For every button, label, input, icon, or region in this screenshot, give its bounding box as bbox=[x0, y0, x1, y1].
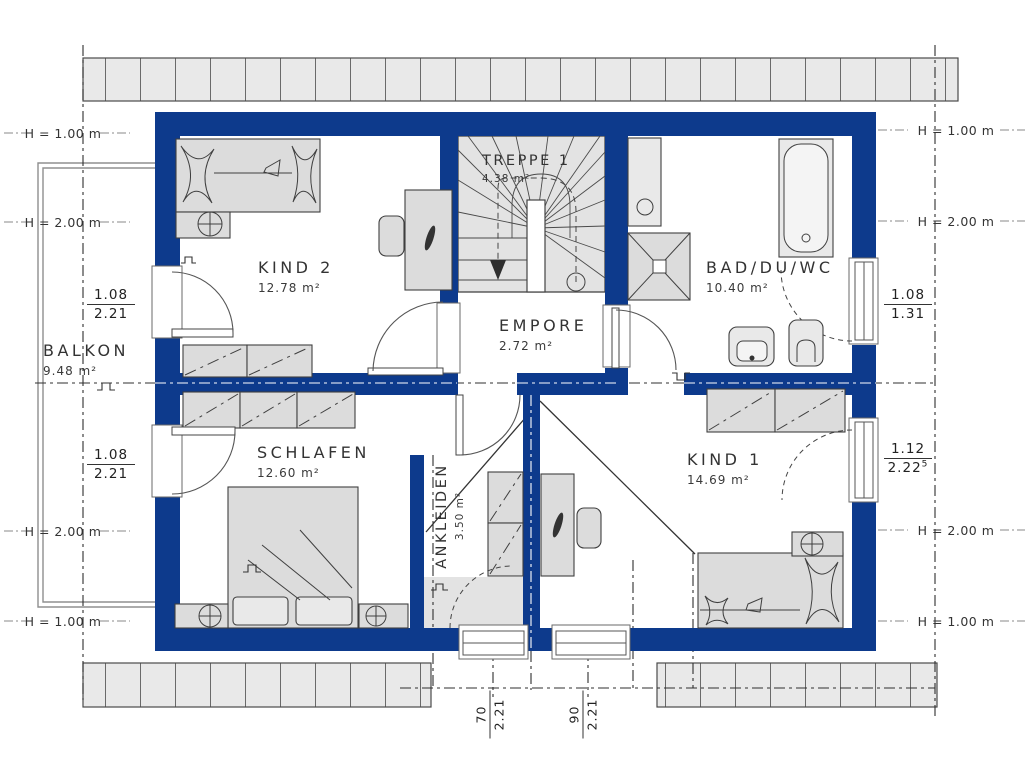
height-marker-left-2: H = 2.00 m bbox=[15, 215, 111, 230]
dim-den: 2.21 bbox=[491, 691, 507, 739]
room-label-empore: EMPORE 2.72 m² bbox=[499, 316, 587, 353]
wall-top bbox=[155, 112, 876, 136]
stair-newel-wall bbox=[527, 200, 545, 292]
dim-den: 2.21 bbox=[87, 305, 135, 322]
room-name-ankleiden: ANKLEIDEN bbox=[434, 436, 450, 596]
room-label-treppe: TREPPE 1 4.38 m² bbox=[482, 153, 571, 185]
dim-num: 1.08 bbox=[884, 287, 932, 305]
room-area-treppe: 4.38 m² bbox=[482, 173, 571, 185]
height-marker-right-1: H = 1.00 m bbox=[908, 123, 1004, 138]
floor-plan-drawing bbox=[0, 0, 1029, 775]
dim-den: 2.21 bbox=[584, 691, 600, 739]
dim-num: 1.08 bbox=[87, 287, 135, 305]
dim-den: 1.31 bbox=[884, 305, 932, 322]
dim-right-lower: 1.12 2.225 bbox=[884, 441, 932, 476]
room-area-kind2: 12.78 m² bbox=[258, 281, 334, 295]
chair-nook bbox=[577, 508, 601, 548]
wall-ankleiden-left bbox=[410, 455, 424, 628]
room-area-schlafen: 12.60 m² bbox=[257, 466, 370, 480]
chair-kind2 bbox=[379, 216, 404, 256]
height-marker-right-3: H = 2.00 m bbox=[908, 523, 1004, 538]
dim-bottom-left: 70 2.21 bbox=[474, 691, 507, 739]
dim-den: 2.21 bbox=[87, 465, 135, 482]
height-marker-right-2: H = 2.00 m bbox=[908, 214, 1004, 229]
door-kind1 bbox=[612, 308, 619, 368]
height-marker-left-1: H = 1.00 m bbox=[15, 126, 111, 141]
toilet bbox=[789, 320, 823, 366]
room-name-balkon: BALKON bbox=[43, 341, 129, 360]
room-name-bad: BAD/DU/WC bbox=[706, 258, 834, 277]
dim-num: 70 bbox=[474, 691, 491, 739]
dim-left-lower: 1.08 2.21 bbox=[87, 447, 135, 482]
room-name-kind1: KIND 1 bbox=[687, 450, 763, 469]
height-marker-left-4: H = 1.00 m bbox=[15, 614, 111, 629]
roof-hatch-top bbox=[83, 58, 958, 101]
height-marker-left-3: H = 2.00 m bbox=[15, 524, 111, 539]
balcony-door-schlafen bbox=[152, 425, 182, 497]
room-name-treppe: TREPPE 1 bbox=[482, 153, 571, 169]
height-marker-right-4: H = 1.00 m bbox=[908, 614, 1004, 629]
dim-num: 1.12 bbox=[884, 441, 932, 459]
room-name-kind2: KIND 2 bbox=[258, 258, 334, 277]
room-area-empore: 2.72 m² bbox=[499, 339, 587, 353]
room-name-empore: EMPORE bbox=[499, 316, 587, 335]
bed-kind1 bbox=[698, 553, 843, 628]
dim-num: 1.08 bbox=[87, 447, 135, 465]
room-label-bad: BAD/DU/WC 10.40 m² bbox=[706, 258, 834, 295]
roof-hatch-bottom-left bbox=[83, 663, 431, 707]
room-label-kind1: KIND 1 14.69 m² bbox=[687, 450, 763, 487]
balcony-door-kind2 bbox=[152, 266, 182, 338]
room-label-ankleiden: ANKLEIDEN 3.50 m² bbox=[434, 436, 466, 596]
bath-cabinet bbox=[628, 138, 661, 226]
room-area-bad: 10.40 m² bbox=[706, 281, 834, 295]
dim-right-upper: 1.08 1.31 bbox=[884, 287, 932, 322]
dim-den: 2.225 bbox=[884, 459, 932, 476]
room-label-balkon: BALKON 9.48 m² bbox=[43, 341, 129, 378]
dim-num: 90 bbox=[567, 691, 584, 739]
bed-kind2 bbox=[176, 139, 320, 212]
door-kind2 bbox=[437, 303, 460, 373]
room-area-balkon: 9.48 m² bbox=[43, 364, 129, 378]
dim-bottom-right: 90 2.21 bbox=[567, 691, 600, 739]
roof-hatch-bottom-right bbox=[657, 663, 937, 707]
room-label-schlafen: SCHLAFEN 12.60 m² bbox=[257, 443, 370, 480]
room-name-schlafen: SCHLAFEN bbox=[257, 443, 370, 462]
floor-plan-canvas: BALKON 9.48 m² KIND 2 12.78 m² TREPPE 1 … bbox=[0, 0, 1029, 775]
dim-left-upper: 1.08 2.21 bbox=[87, 287, 135, 322]
room-area-kind1: 14.69 m² bbox=[687, 473, 763, 487]
wall-bottom bbox=[155, 628, 459, 651]
room-area-ankleiden: 3.50 m² bbox=[454, 436, 466, 596]
room-label-kind2: KIND 2 12.78 m² bbox=[258, 258, 334, 295]
